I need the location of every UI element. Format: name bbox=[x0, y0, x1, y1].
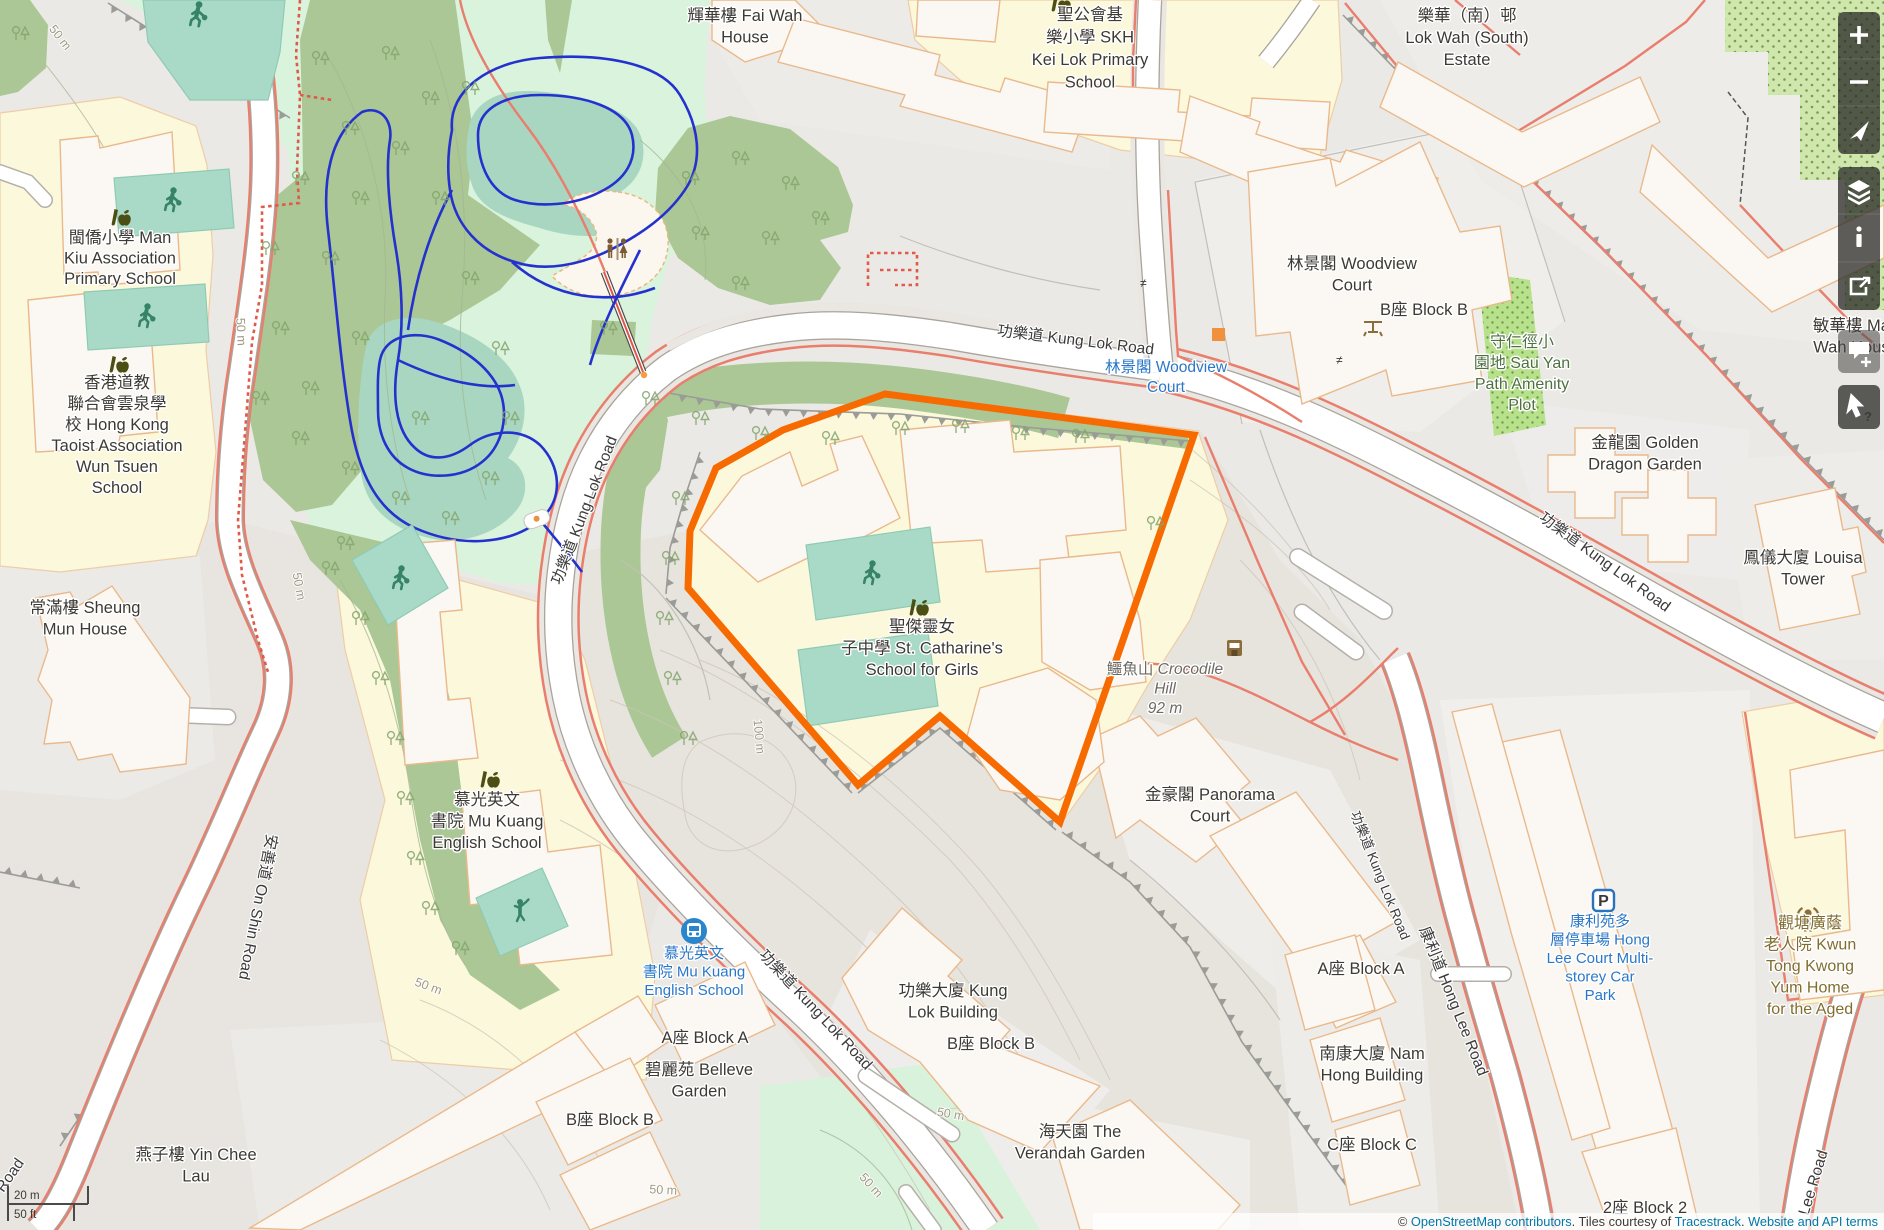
svg-text:≠: ≠ bbox=[1336, 353, 1343, 367]
svg-text:© OpenStreetMap contributors.: © OpenStreetMap contributors. Tiles cour… bbox=[1398, 1214, 1878, 1229]
svg-text:P: P bbox=[1598, 893, 1609, 910]
svg-text:50 m: 50 m bbox=[649, 1182, 677, 1197]
svg-text:?: ? bbox=[1864, 409, 1872, 424]
svg-text:A座 Block A: A座 Block A bbox=[661, 1028, 748, 1047]
svg-text:≠: ≠ bbox=[1140, 276, 1147, 290]
svg-text:20 m: 20 m bbox=[14, 1190, 40, 1202]
svg-text:A座 Block A: A座 Block A bbox=[1317, 959, 1404, 978]
svg-text:B座 Block B: B座 Block B bbox=[1380, 300, 1468, 319]
svg-text:50 m: 50 m bbox=[233, 318, 248, 346]
svg-text:閩僑小學 ManKiu AssociationPrimary: 閩僑小學 ManKiu AssociationPrimary School bbox=[64, 228, 176, 288]
svg-text:50 ft: 50 ft bbox=[14, 1209, 37, 1221]
svg-text:B座 Block B: B座 Block B bbox=[566, 1110, 654, 1129]
svg-text:C座 Block C: C座 Block C bbox=[1327, 1135, 1417, 1154]
svg-text:B座 Block B: B座 Block B bbox=[947, 1034, 1035, 1053]
